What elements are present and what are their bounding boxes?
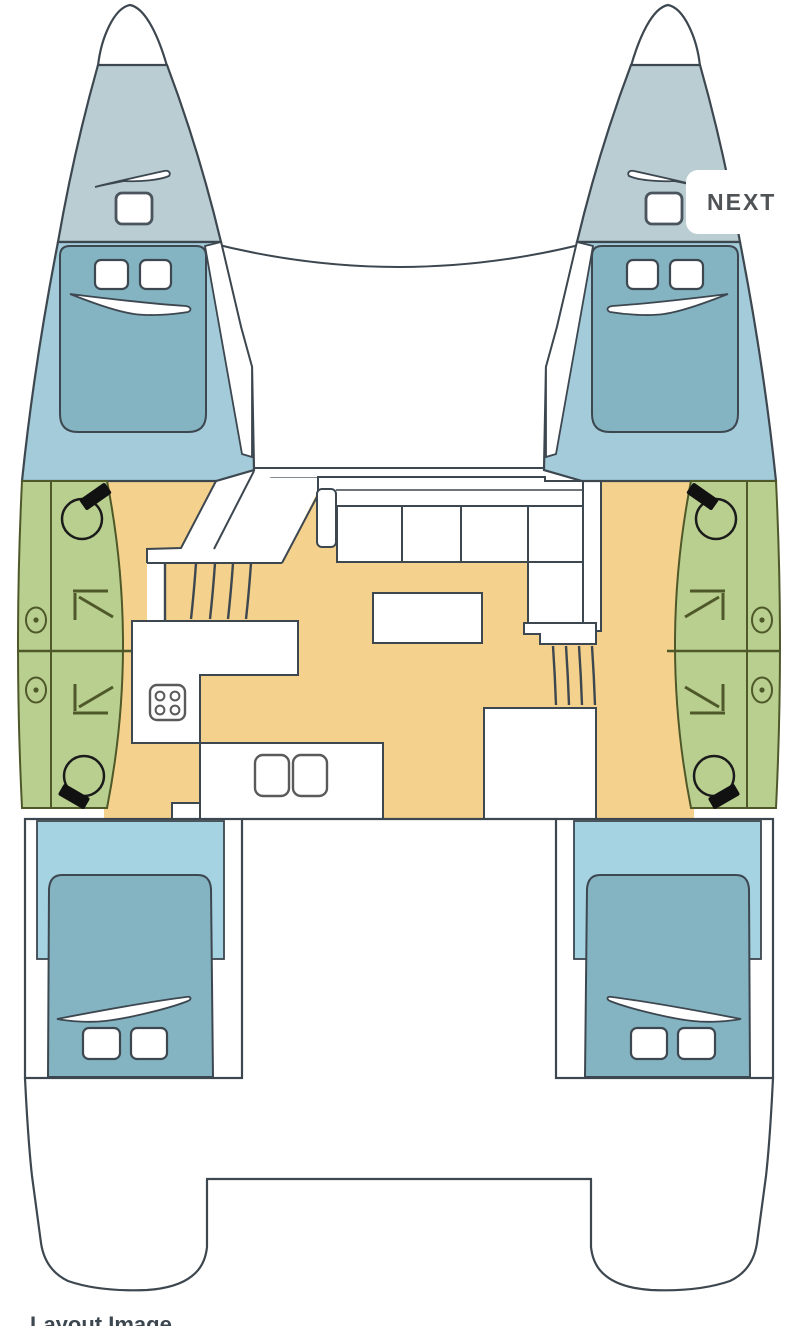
svg-text:NEXT: NEXT bbox=[707, 189, 776, 215]
svg-text:Layout Image: Layout Image bbox=[30, 1312, 172, 1326]
